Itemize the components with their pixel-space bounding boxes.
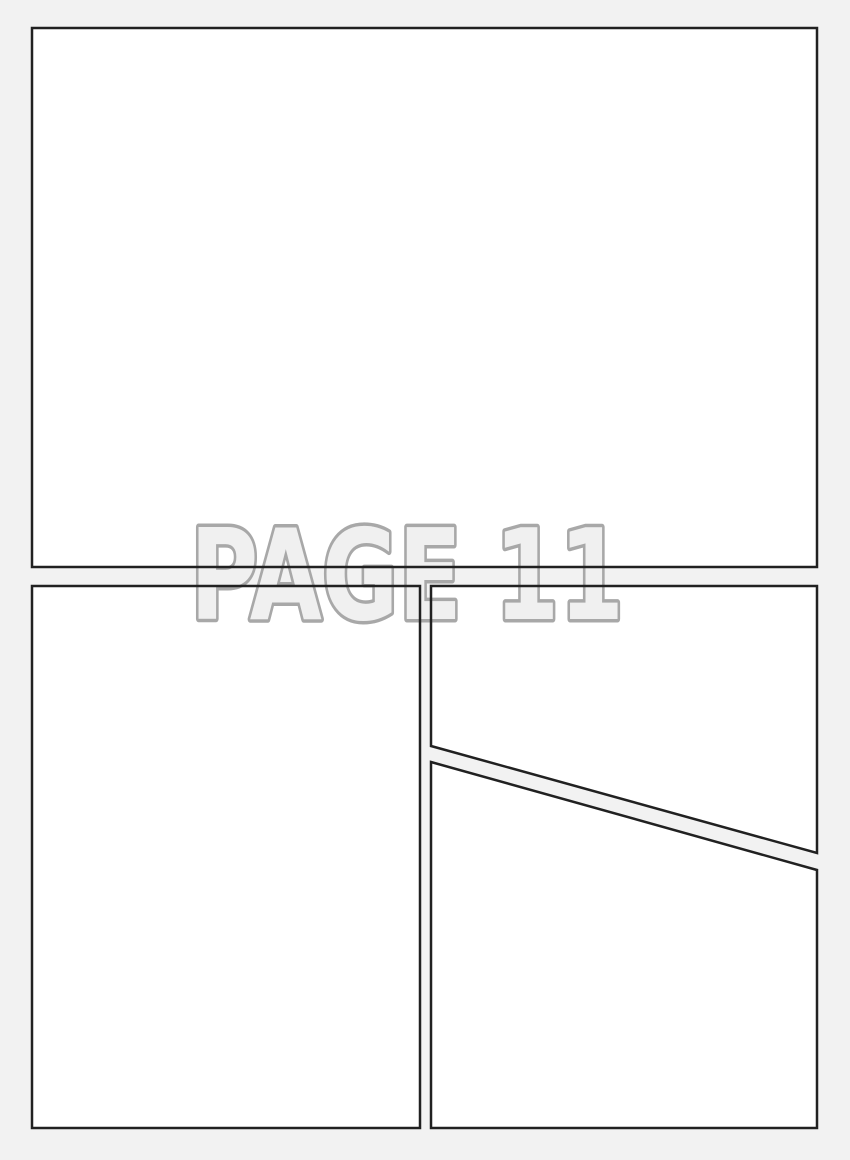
panel-top-fill xyxy=(32,28,817,567)
page-canvas: PAGE 11 xyxy=(0,0,850,1160)
comic-page-template: PAGE 11 xyxy=(0,0,850,1160)
page-number-watermark: PAGE 11 xyxy=(190,502,624,649)
panel-bottom-left-fill xyxy=(32,586,420,1128)
